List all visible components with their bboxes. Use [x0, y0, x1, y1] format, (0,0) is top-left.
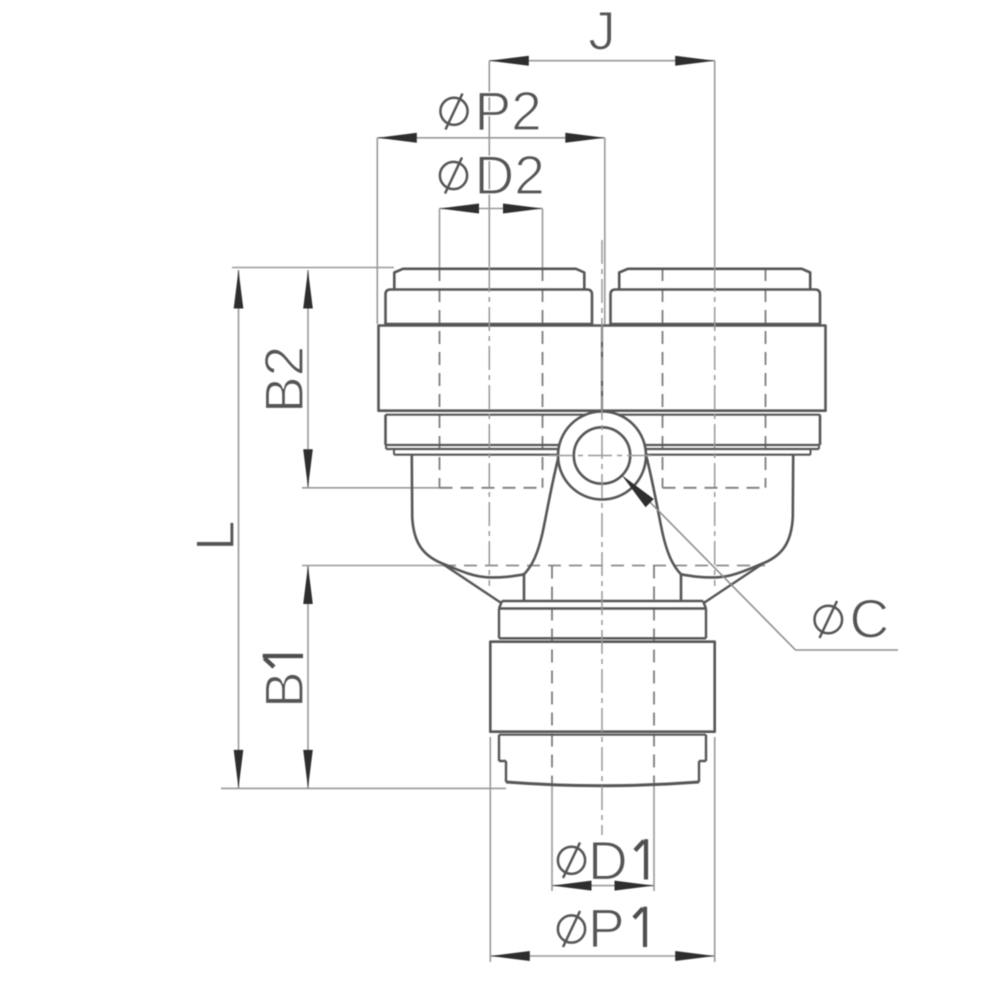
svg-text:P: P — [588, 897, 625, 959]
svg-text:J: J — [588, 0, 616, 62]
svg-text:D: D — [588, 830, 628, 892]
svg-text:B: B — [253, 671, 315, 708]
svg-text:L: L — [184, 520, 246, 551]
svg-text:D2: D2 — [475, 144, 545, 206]
svg-text:P2: P2 — [475, 80, 542, 142]
svg-text:C: C — [850, 588, 890, 650]
svg-text:B2: B2 — [253, 346, 315, 413]
